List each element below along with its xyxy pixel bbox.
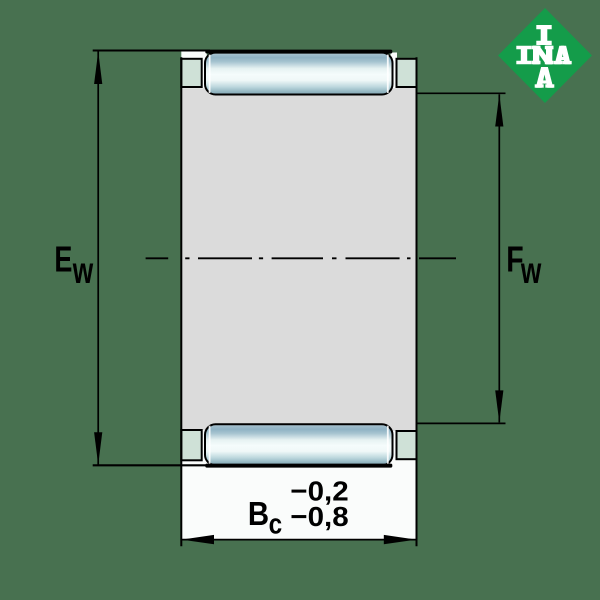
svg-text:w: w — [520, 249, 542, 291]
svg-text:B: B — [248, 495, 269, 532]
svg-text:E: E — [54, 239, 72, 280]
svg-text:w: w — [72, 249, 94, 291]
svg-text:c: c — [269, 508, 283, 540]
svg-text:−0,8: −0,8 — [290, 501, 348, 532]
